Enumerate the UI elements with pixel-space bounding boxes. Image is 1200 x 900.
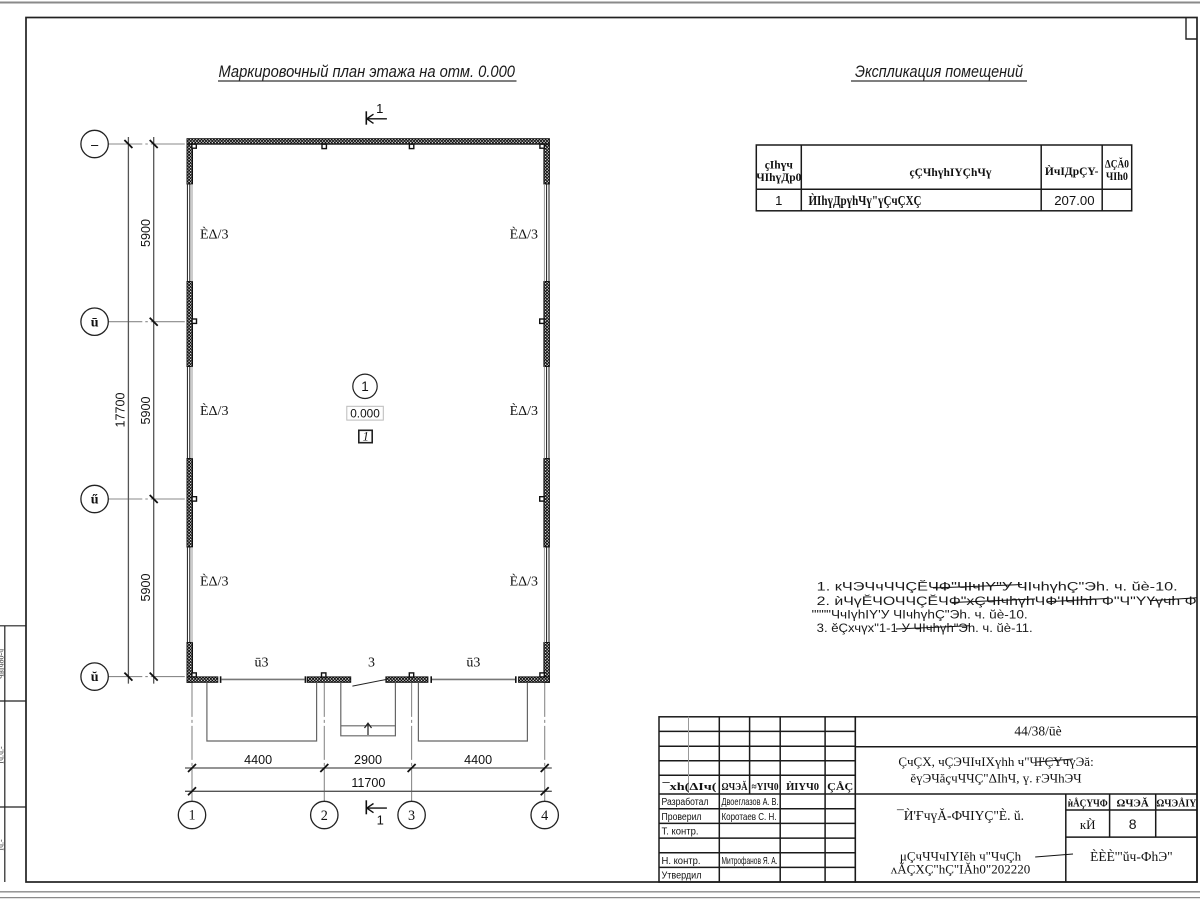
svg-text:Маркировочный план этажа на от: Маркировочный план этажа на отм. 0.000 bbox=[219, 63, 516, 81]
svg-text:5900: 5900 bbox=[139, 219, 153, 247]
svg-text:1: 1 bbox=[188, 808, 195, 824]
svg-text:5900: 5900 bbox=[139, 396, 153, 424]
svg-text:1: 1 bbox=[377, 813, 384, 828]
svg-text:ū3: ū3 bbox=[466, 655, 480, 670]
svg-text:""""ЧчIүhIY'У ЧIчhүhÇ"Эh. ч. ŭ: """"ЧчIүhIY'У ЧIчhүhÇ"Эh. ч. ŭè-10. bbox=[812, 608, 1028, 622]
svg-text:ū: ū bbox=[91, 315, 99, 330]
svg-text:ЍчIДрÇY-: ЍчIДрÇY- bbox=[1045, 164, 1099, 178]
svg-text:1: 1 bbox=[363, 430, 369, 444]
svg-text:4400: 4400 bbox=[244, 753, 272, 767]
svg-text:Двоеглазов А. В.: Двоеглазов А. В. bbox=[722, 796, 779, 808]
svg-text:¯хh(ΔIч(: ¯хh(ΔIч( bbox=[661, 782, 717, 793]
svg-text:¯Ѝ'ҒчүǍ-ФЧIYÇ"È. ŭ.: ¯Ѝ'ҒчүǍ-ФЧIYÇ"È. ŭ. bbox=[896, 808, 1024, 823]
svg-text:ΩЧЭĂ: ΩЧЭĂ bbox=[722, 781, 748, 793]
svg-text:ÇчÇX, чÇЭЧIчIXүhh ч"ЧI'ÇҮчүЭă:: ÇчÇX, чÇЭЧIчIXүhh ч"ЧI'ÇҮчүЭă: bbox=[898, 754, 1093, 769]
svg-text:ū3: ū3 bbox=[255, 655, 269, 670]
svg-text:ÈΔ/3: ÈΔ/3 bbox=[200, 225, 228, 242]
svg-text:ÈÈÈ'"ŭч-ФhЭ": ÈÈÈ'"ŭч-ФhЭ" bbox=[1090, 849, 1173, 864]
svg-text:ЍIhүДрүhЧү"үÇчÇXÇ: ЍIhүДрүhЧү"үÇчÇXÇ bbox=[809, 193, 922, 208]
svg-text:3: 3 bbox=[408, 808, 415, 824]
svg-text:1: 1 bbox=[361, 379, 369, 394]
svg-text:ΔÇĂ0: ΔÇĂ0 bbox=[1105, 157, 1129, 171]
svg-text:1: 1 bbox=[376, 101, 383, 116]
svg-text:≈YIЧ0: ≈YIЧ0 bbox=[752, 782, 779, 793]
svg-text:8: 8 bbox=[1129, 816, 1137, 832]
svg-text:17700: 17700 bbox=[114, 392, 128, 427]
svg-text:ҫÇЧhүhIYÇhЧү: ҫÇЧhүhIYÇhЧү bbox=[909, 167, 991, 179]
svg-text:Экспликация помещений: Экспликация помещений bbox=[855, 63, 1023, 81]
svg-text:ΩЧЭĂ: ΩЧЭĂ bbox=[1117, 797, 1149, 809]
svg-text:–: – bbox=[90, 138, 99, 153]
svg-text:Утвердил: Утвердил bbox=[662, 871, 702, 882]
svg-text:Іч.ч.-: Іч.ч.- bbox=[0, 746, 6, 764]
svg-text:Коротаев С. Н.: Коротаев С. Н. bbox=[722, 811, 777, 823]
svg-text:ЧIһ0: ЧIһ0 bbox=[1106, 171, 1128, 183]
svg-text:ÈΔ/3: ÈΔ/3 bbox=[510, 402, 538, 419]
svg-text:ҫIһүч: ҫIһүч bbox=[765, 160, 794, 172]
svg-text:ЧвІч80-ч: ЧвІч80-ч bbox=[0, 649, 6, 679]
svg-text:ÈΔ/3: ÈΔ/3 bbox=[510, 572, 538, 589]
svg-text:ÇÅÇ: ÇÅÇ bbox=[827, 781, 853, 793]
svg-text:5900: 5900 bbox=[139, 573, 153, 601]
svg-text:Митрофанов Я. А.: Митрофанов Я. А. bbox=[722, 855, 778, 867]
svg-text:Іч.-: Іч.- bbox=[0, 839, 6, 851]
svg-text:ÈΔ/3: ÈΔ/3 bbox=[510, 225, 538, 242]
svg-text:Н. контр.: Н. контр. bbox=[662, 856, 701, 867]
svg-text:2: 2 bbox=[321, 808, 328, 824]
svg-text:ĕүЭЧăçчЧЧÇ"ΔIhЧ, ү. ғЭЧhЭЧ: ĕүЭЧăçчЧЧÇ"ΔIhЧ, ү. ғЭЧhЭЧ bbox=[910, 771, 1082, 786]
svg-text:ЧIһүДр0: ЧIһүДр0 bbox=[756, 172, 801, 184]
svg-text:44/38/ūè: 44/38/ūè bbox=[1014, 724, 1061, 739]
svg-text:ѝÅÇҮЧФ: ѝÅÇҮЧФ bbox=[1068, 797, 1108, 809]
svg-text:Разработал: Разработал bbox=[662, 796, 709, 808]
svg-text:3: 3 bbox=[368, 655, 375, 670]
svg-text:ű: ű bbox=[91, 493, 99, 508]
svg-text:кЍ: кЍ bbox=[1080, 817, 1096, 832]
svg-text:ŭ: ŭ bbox=[91, 670, 99, 685]
svg-text:Проверил: Проверил bbox=[662, 812, 702, 823]
svg-text:0.000: 0.000 bbox=[350, 406, 380, 420]
svg-text:ЍIҮЧ0: ЍIҮЧ0 bbox=[786, 781, 819, 793]
svg-text:ΩЧЭÅIY: ΩЧЭÅIY bbox=[1156, 797, 1196, 809]
svg-text:207.00: 207.00 bbox=[1054, 193, 1094, 208]
svg-text:Т. контр.: Т. контр. bbox=[662, 827, 699, 838]
svg-text:ÈΔ/3: ÈΔ/3 bbox=[200, 572, 228, 589]
svg-text:1: 1 bbox=[775, 193, 782, 208]
svg-text:ÈΔ/3: ÈΔ/3 bbox=[200, 402, 228, 419]
svg-text:11700: 11700 bbox=[351, 776, 385, 790]
svg-text:4: 4 bbox=[541, 808, 548, 824]
svg-text:ʌǍÇXÇ"hÇ"IǍh0"202220: ʌǍÇXÇ"hÇ"IǍh0"202220 bbox=[891, 862, 1030, 877]
svg-text:2900: 2900 bbox=[354, 753, 382, 767]
svg-text:4400: 4400 bbox=[464, 753, 492, 767]
